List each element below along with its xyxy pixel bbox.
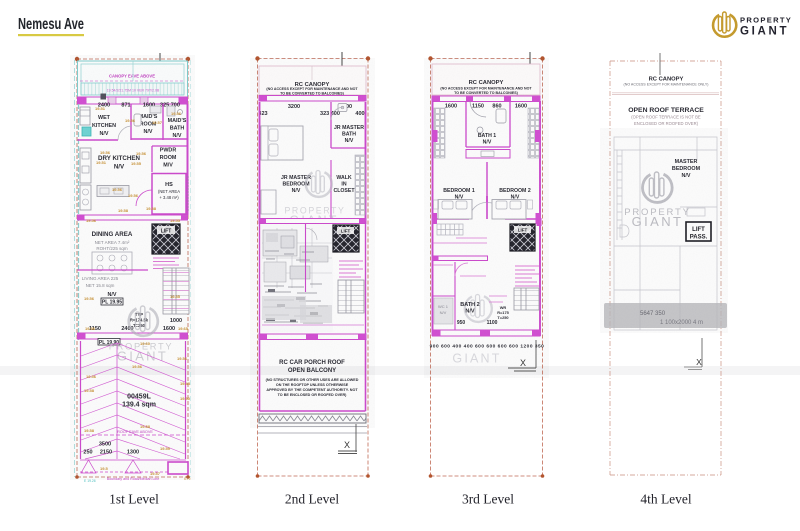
svg-text:ENCLOSED OR ROOFED OVER): ENCLOSED OR ROOFED OVER) (634, 121, 699, 126)
svg-text:3rd Level: 3rd Level (462, 492, 514, 507)
svg-text:1st Level: 1st Level (109, 492, 159, 507)
svg-text:Nemesu Ave: Nemesu Ave (18, 16, 84, 33)
svg-text:X: X (696, 357, 702, 367)
svg-text:GIANT: GIANT (740, 26, 789, 38)
svg-text:(OPEN ROOF TERRACE IS NOT BE: (OPEN ROOF TERRACE IS NOT BE (631, 115, 701, 120)
svg-text:2nd Level: 2nd Level (285, 492, 340, 507)
svg-text:X: X (344, 440, 350, 450)
svg-text:(NO ACCESS EXCEPT FOR MAINTENA: (NO ACCESS EXCEPT FOR MAINTENANCE ONLY) (624, 83, 709, 87)
svg-text:PROPERTY: PROPERTY (740, 16, 792, 25)
svg-text:OPEN ROOF TERRACE: OPEN ROOF TERRACE (628, 107, 704, 114)
svg-text:4th Level: 4th Level (640, 492, 692, 507)
